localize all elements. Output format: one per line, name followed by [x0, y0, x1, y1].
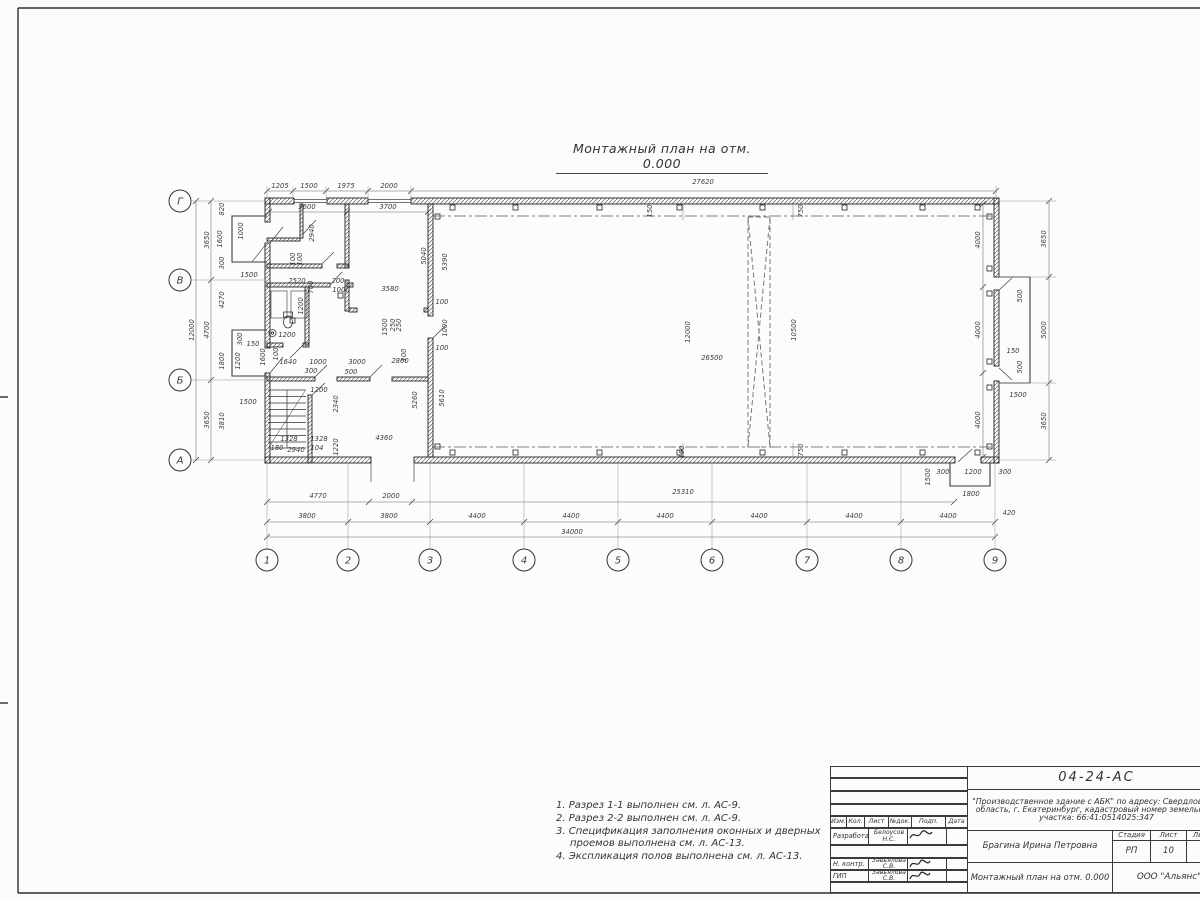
dim-label: 250	[395, 319, 403, 332]
stamp-sheet-value: 10	[1150, 840, 1187, 863]
dim-label: 750	[797, 205, 805, 218]
dim-label: 1975	[337, 182, 354, 190]
signature	[907, 828, 947, 845]
dim-label: 5610	[438, 389, 446, 406]
dim-label: 2	[345, 556, 351, 567]
dim-label: 8	[898, 556, 904, 567]
dim-label: 150	[247, 340, 260, 348]
dim-label: 4000	[974, 321, 982, 338]
dim-label: 4400	[562, 512, 579, 520]
dim-label: 3	[427, 556, 433, 567]
stamp-col-ndok: №док.	[888, 816, 912, 828]
note-line: 3. Спецификация заполнения оконных и две…	[556, 826, 821, 839]
dim-label: 1800	[218, 352, 226, 369]
walls	[265, 198, 999, 463]
dim-label: 4000	[974, 411, 982, 428]
dim-label: 820	[218, 203, 226, 216]
drawing-sheet: 123456789ГВБА120515001975200027620360037…	[0, 0, 1200, 900]
stamp-col-kol: Кол.	[846, 816, 865, 828]
stamp-sheets-value: 13	[1186, 840, 1200, 863]
dim-label: 300	[236, 333, 244, 346]
dim-label: 27620	[692, 178, 714, 186]
dim-label: 1200	[964, 468, 981, 476]
dim-label: 4400	[750, 512, 767, 520]
dim-label: 3800	[298, 512, 315, 520]
dim-label: 700	[307, 281, 315, 294]
dim-label: 150	[646, 205, 654, 218]
stamp-name-ncontrol: Завьялова С.В.	[868, 858, 908, 870]
dim-label: 2940	[308, 224, 316, 241]
dim-label: 420	[1003, 509, 1016, 517]
dim-label: 100	[436, 298, 449, 306]
dim-label: 1500	[1009, 391, 1026, 399]
dim-label: 1800	[962, 490, 979, 498]
dim-label: 2520	[288, 277, 305, 285]
stamp-role-developer: Разработал	[830, 828, 869, 845]
dim-label: 1	[264, 556, 270, 567]
dim-label: 300	[999, 468, 1012, 476]
title-block: Изм. Кол. Лист №док. Подп. Дата Разработ…	[830, 766, 1200, 893]
stamp-role-gip: ГИП	[830, 870, 869, 882]
dim-label: 1328	[280, 435, 298, 443]
dim-label: 12000	[188, 319, 196, 341]
note-line: 1. Разрез 1-1 выполнен см. л. АС-9.	[556, 800, 821, 813]
dim-label: 1328	[310, 435, 328, 443]
dim-label: 100	[436, 344, 449, 352]
dim-label: 1000	[441, 319, 449, 336]
stamp-col-podp: Подп.	[911, 816, 946, 828]
dim-label: 3800	[380, 512, 397, 520]
dim-label: 12000	[684, 321, 692, 343]
dim-label: 104	[311, 444, 324, 452]
stamp-col-izm: Изм.	[830, 816, 847, 828]
dim-label: 1500	[240, 271, 257, 279]
dim-label: 4270	[218, 291, 226, 308]
dim-label: 4400	[939, 512, 956, 520]
dim-label: 100	[296, 253, 304, 266]
plan-title: Монтажный план на отм. 0.000	[556, 141, 768, 174]
stamp-project-line: участка: 66:41:0514025:347	[1039, 814, 1154, 822]
dim-label: 1200	[234, 352, 242, 369]
stamp-name-gip: Завьялова С.В.	[868, 870, 908, 882]
dim-label: 1600	[216, 230, 224, 247]
stamp-author: Брагина Ирина Петровна	[967, 830, 1113, 863]
dim-label: 1500	[300, 182, 317, 190]
dim-label: 4700	[203, 321, 211, 338]
dim-label: 3650	[1040, 230, 1048, 247]
dim-label: 26500	[701, 354, 723, 362]
dim-label: 3600	[298, 203, 315, 211]
dim-label: 300	[305, 367, 318, 375]
dim-label: 1500	[239, 398, 256, 406]
dim-label: 2000	[380, 182, 397, 190]
dim-label: 5000	[1040, 321, 1048, 338]
hall-axis-lines	[433, 216, 993, 447]
dim-label: 3580	[381, 285, 398, 293]
dim-label: 4	[521, 556, 527, 567]
porches	[232, 216, 1030, 486]
dim-label: 1000	[237, 222, 245, 239]
extension-helpers	[683, 204, 793, 457]
note-line: 4. Экспликация полов выполнена см. л. АС…	[556, 851, 821, 864]
signature	[907, 870, 947, 882]
dim-label: 1200	[297, 297, 305, 314]
dim-label: 1640	[279, 358, 296, 366]
dim-label: 500	[345, 368, 358, 376]
notes-block: 1. Разрез 1-1 выполнен см. л. АС-9. 2. Р…	[556, 800, 821, 864]
dim-label: 1205	[271, 182, 288, 190]
dim-label: 1200	[310, 386, 327, 394]
dim-label: 4400	[656, 512, 673, 520]
dim-label: 1000	[309, 358, 326, 366]
dim-label: 1220	[332, 438, 340, 455]
stamp-col-list: Лист	[864, 816, 889, 828]
dim-label: 3000	[348, 358, 365, 366]
dim-label: 3650	[203, 411, 211, 428]
dim-label: 7	[804, 556, 811, 567]
stamp-drawing-title: Монтажный план на отм. 0.000	[967, 862, 1113, 893]
door-leaves	[252, 220, 1012, 462]
dim-label: 9	[992, 556, 998, 567]
dim-label: Б	[177, 376, 184, 387]
dim-label: 5040	[420, 247, 428, 264]
stamp-project: "Производственное здание с АБК" по адрес…	[967, 789, 1200, 831]
note-line: проемов выполнена см. л. АС-13.	[570, 838, 821, 851]
dim-label: 1500	[924, 468, 932, 485]
dim-label: 5260	[411, 391, 419, 408]
dim-label: 5	[615, 556, 621, 567]
dim-label: 5390	[441, 253, 449, 270]
dim-label: 4400	[468, 512, 485, 520]
dim-label: 2940	[287, 446, 304, 454]
dim-label: 100	[272, 348, 280, 361]
dim-label: 150	[1007, 347, 1020, 355]
dim-label: 34000	[561, 528, 583, 536]
dim-label: 2000	[382, 492, 399, 500]
stamp-col-data: Дата	[945, 816, 968, 828]
dim-label: 180	[271, 444, 284, 452]
dim-label: 10500	[790, 319, 798, 341]
dim-label: 3810	[218, 412, 226, 429]
dim-label: 300	[218, 257, 226, 270]
dim-label: Г	[177, 197, 184, 208]
dim-label: 4360	[375, 434, 392, 442]
dim-label: 6	[709, 556, 715, 567]
bracing	[748, 217, 770, 447]
stamp-org: ООО "Альянс"	[1112, 862, 1200, 893]
dim-label: 3700	[379, 203, 396, 211]
dim-label: 1200	[278, 331, 295, 339]
dim-label: 2340	[332, 395, 340, 412]
dim-label: 4000	[974, 231, 982, 248]
stamp-doc-code: 04-24-АС	[967, 766, 1200, 790]
dim-label: 4400	[845, 512, 862, 520]
dim-label: 1600	[259, 348, 267, 365]
floor-plan-canvas: 123456789ГВБА120515001975200027620360037…	[0, 0, 1200, 900]
dim-label: 500	[1016, 361, 1024, 374]
dim-label: 100	[400, 349, 408, 362]
dim-label: 3650	[203, 231, 211, 248]
dim-label: В	[177, 276, 184, 287]
signature	[907, 858, 947, 870]
dim-label: 500	[1016, 290, 1024, 303]
dim-label: 750	[797, 444, 805, 457]
dim-label: 4770	[309, 492, 326, 500]
dim-label: 200	[332, 277, 345, 285]
stamp-role-ncontrol: Н. контр.	[830, 858, 869, 870]
dim-label: 3650	[1040, 412, 1048, 429]
note-line: 2. Разрез 2-2 выполнен см. л. АС-9.	[556, 813, 821, 826]
stamp-stage-value: РП	[1112, 840, 1151, 863]
dim-label: А	[176, 456, 184, 467]
dim-label: 300	[937, 468, 950, 476]
stamp-name-developer: Белоусов Н.С.	[868, 828, 908, 845]
dim-label: 150	[678, 446, 686, 459]
dim-label: 25310	[672, 488, 694, 496]
dim-label: 1500	[381, 318, 389, 335]
dim-label: 1000	[332, 286, 349, 294]
